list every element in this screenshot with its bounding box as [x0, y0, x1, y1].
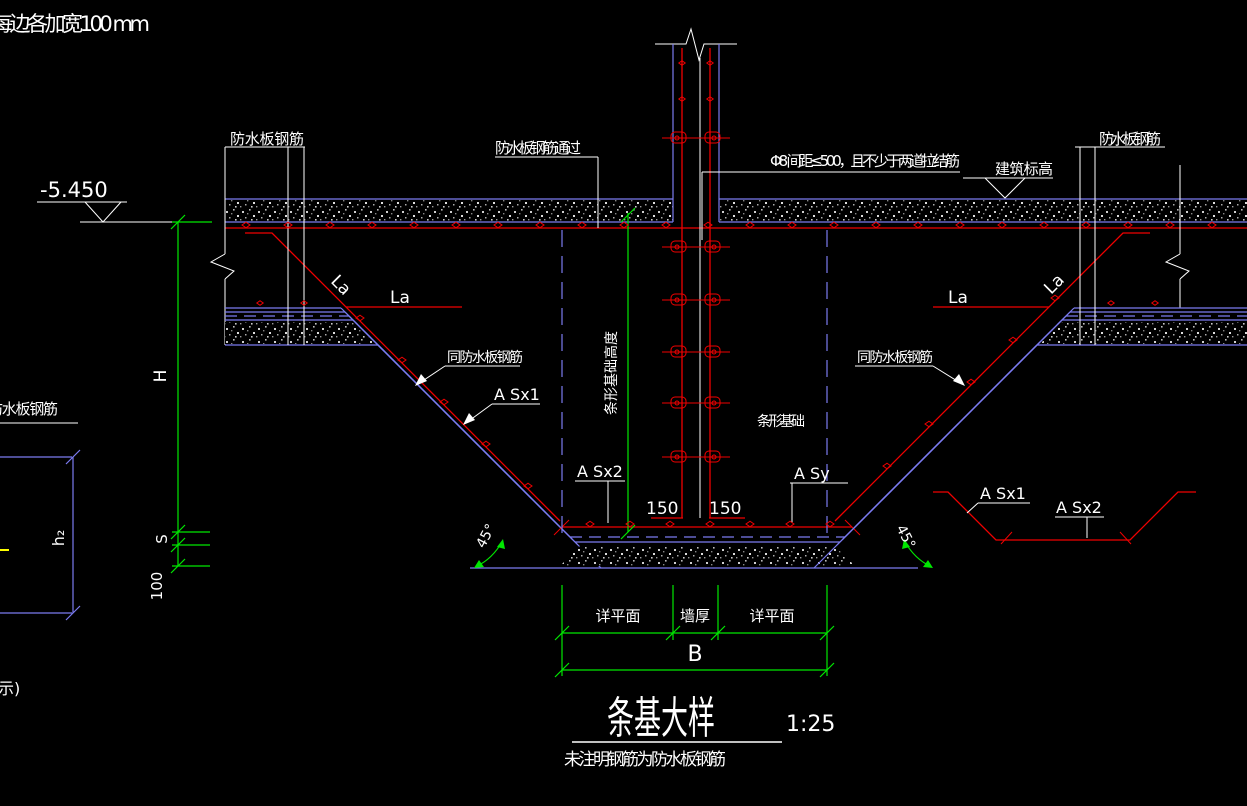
dimension-left-chain — [171, 215, 212, 573]
waterproof-rebar-label-small: 防水板钢筋 — [0, 400, 58, 418]
same-as-waterproof-label-right: 同防水板钢筋 — [857, 349, 933, 366]
rebar-dot — [746, 521, 754, 527]
detail-asx1-label: A Sx1 — [980, 484, 1026, 503]
rebar-dot — [1208, 222, 1216, 228]
la-label-diag-right: La — [1040, 270, 1068, 298]
rebar-dot — [536, 222, 544, 228]
rebar-dot — [452, 222, 460, 228]
la-label-right: La — [948, 288, 968, 308]
foundation-detail-drawing: 每边各加宽100 mm -5.450 防水板钢筋 防水板钢筋通过 Φ8 间距≤5… — [0, 0, 1247, 806]
dim-100-label: 100 — [148, 572, 166, 601]
building-elevation-label: 建筑标高 — [995, 160, 1053, 178]
rebar-markers — [242, 61, 1216, 527]
break-icon — [211, 254, 234, 279]
rebar-dot — [257, 301, 263, 305]
angle-label-left: 45° — [473, 521, 499, 550]
rebar-dot — [1082, 222, 1090, 228]
leader-arrow — [953, 374, 965, 386]
rebar-dot — [704, 222, 712, 228]
rebar-dot — [1166, 222, 1174, 228]
rebar-dot — [872, 222, 880, 228]
rebar-dot — [326, 222, 334, 228]
dim-h2-label: h₂ — [49, 530, 68, 547]
foundation-band — [225, 308, 1247, 568]
dim-H-label: H — [151, 370, 171, 383]
dim-B-label: B — [687, 642, 702, 667]
hook-dim-left: 150 — [646, 499, 678, 519]
angle-label-right: 45° — [892, 522, 918, 551]
drawing-scale: 1:25 — [786, 712, 835, 737]
rebar-dot — [586, 521, 594, 527]
partial-note: 示) — [0, 679, 20, 698]
asx1-label: A Sx1 — [494, 385, 540, 404]
rebar-dot — [956, 222, 964, 228]
rebar-dot — [788, 222, 796, 228]
detail-asx2-label: A Sx2 — [1056, 498, 1102, 517]
rebar-dot — [494, 222, 502, 228]
elevation-value: -5.450 — [40, 178, 108, 202]
rebar-dot — [914, 222, 922, 228]
rebar-dot — [626, 521, 634, 527]
waterproof-rebar-label-left: 防水板钢筋 — [230, 130, 304, 148]
elevation-marker-right — [963, 178, 1053, 198]
elevation-marker-left — [37, 202, 210, 222]
waterproof-rebar-label-right: 防水板钢筋 — [1099, 130, 1161, 148]
wall-thickness-dim: 墙厚 — [680, 607, 710, 625]
rebar-dot — [998, 222, 1006, 228]
rebar-dot — [368, 222, 376, 228]
drawing-title: 条基大样 — [607, 693, 715, 744]
dim-S-label: S — [153, 534, 171, 544]
leader-arrow — [415, 374, 427, 386]
left-partial-detail — [0, 423, 80, 620]
same-as-waterproof-label-left: 同防水板钢筋 — [447, 349, 523, 366]
rebar-dot — [410, 222, 418, 228]
bent-rebars — [245, 233, 1150, 521]
rebar-dot — [746, 222, 754, 228]
rebar-dot — [1108, 301, 1114, 305]
rebar-dot — [786, 521, 794, 527]
asy-label: A Sy — [794, 464, 830, 483]
rebar-dot — [620, 222, 628, 228]
foundation-edge-dashed-lines — [562, 230, 827, 535]
la-label-left: La — [390, 288, 410, 308]
rebar-dot — [1152, 301, 1158, 305]
wall — [651, 29, 745, 518]
asx2-label: A Sx2 — [577, 462, 623, 481]
wall-break-icon — [655, 29, 737, 60]
waterproof-rebar-pass-label: 防水板钢筋通过 — [495, 139, 581, 157]
plan-dim-left: 详平面 — [595, 607, 640, 625]
la-label-diag-left: La — [326, 271, 354, 299]
rebar-dot — [242, 222, 250, 228]
rebar-dot — [1124, 222, 1132, 228]
drawing-canvas[interactable]: 每边各加宽100 mm -5.450 防水板钢筋 防水板钢筋通过 Φ8 间距≤5… — [0, 0, 1247, 806]
strip-foundation-label: 条形基础 — [757, 413, 805, 430]
leader-arrow — [463, 413, 475, 425]
top-note: 每边各加宽100 mm — [0, 12, 150, 36]
dimension-foundation-height — [621, 208, 635, 539]
rebar-dot — [578, 222, 586, 228]
break-icon — [1166, 254, 1189, 279]
rebar-dot — [662, 222, 670, 228]
foundation-height-label: 条形基础高度 — [603, 331, 620, 415]
rebar-dot — [1040, 222, 1048, 228]
plan-dim-right: 详平面 — [749, 607, 794, 625]
rebar-dot — [706, 521, 714, 527]
drawing-note: 未注明钢筋为防水板钢筋 — [564, 750, 726, 770]
top-slab — [225, 199, 1247, 228]
tie-bar-note: Φ8 间距≤500，且不少于两道拉结筋 — [770, 152, 960, 170]
rebar-dot — [830, 222, 838, 228]
rebar-dot — [666, 521, 674, 527]
hook-dim-right: 150 — [709, 499, 741, 519]
text-layer: 每边各加宽100 mm -5.450 防水板钢筋 防水板钢筋通过 Φ8 间距≤5… — [0, 12, 1161, 770]
